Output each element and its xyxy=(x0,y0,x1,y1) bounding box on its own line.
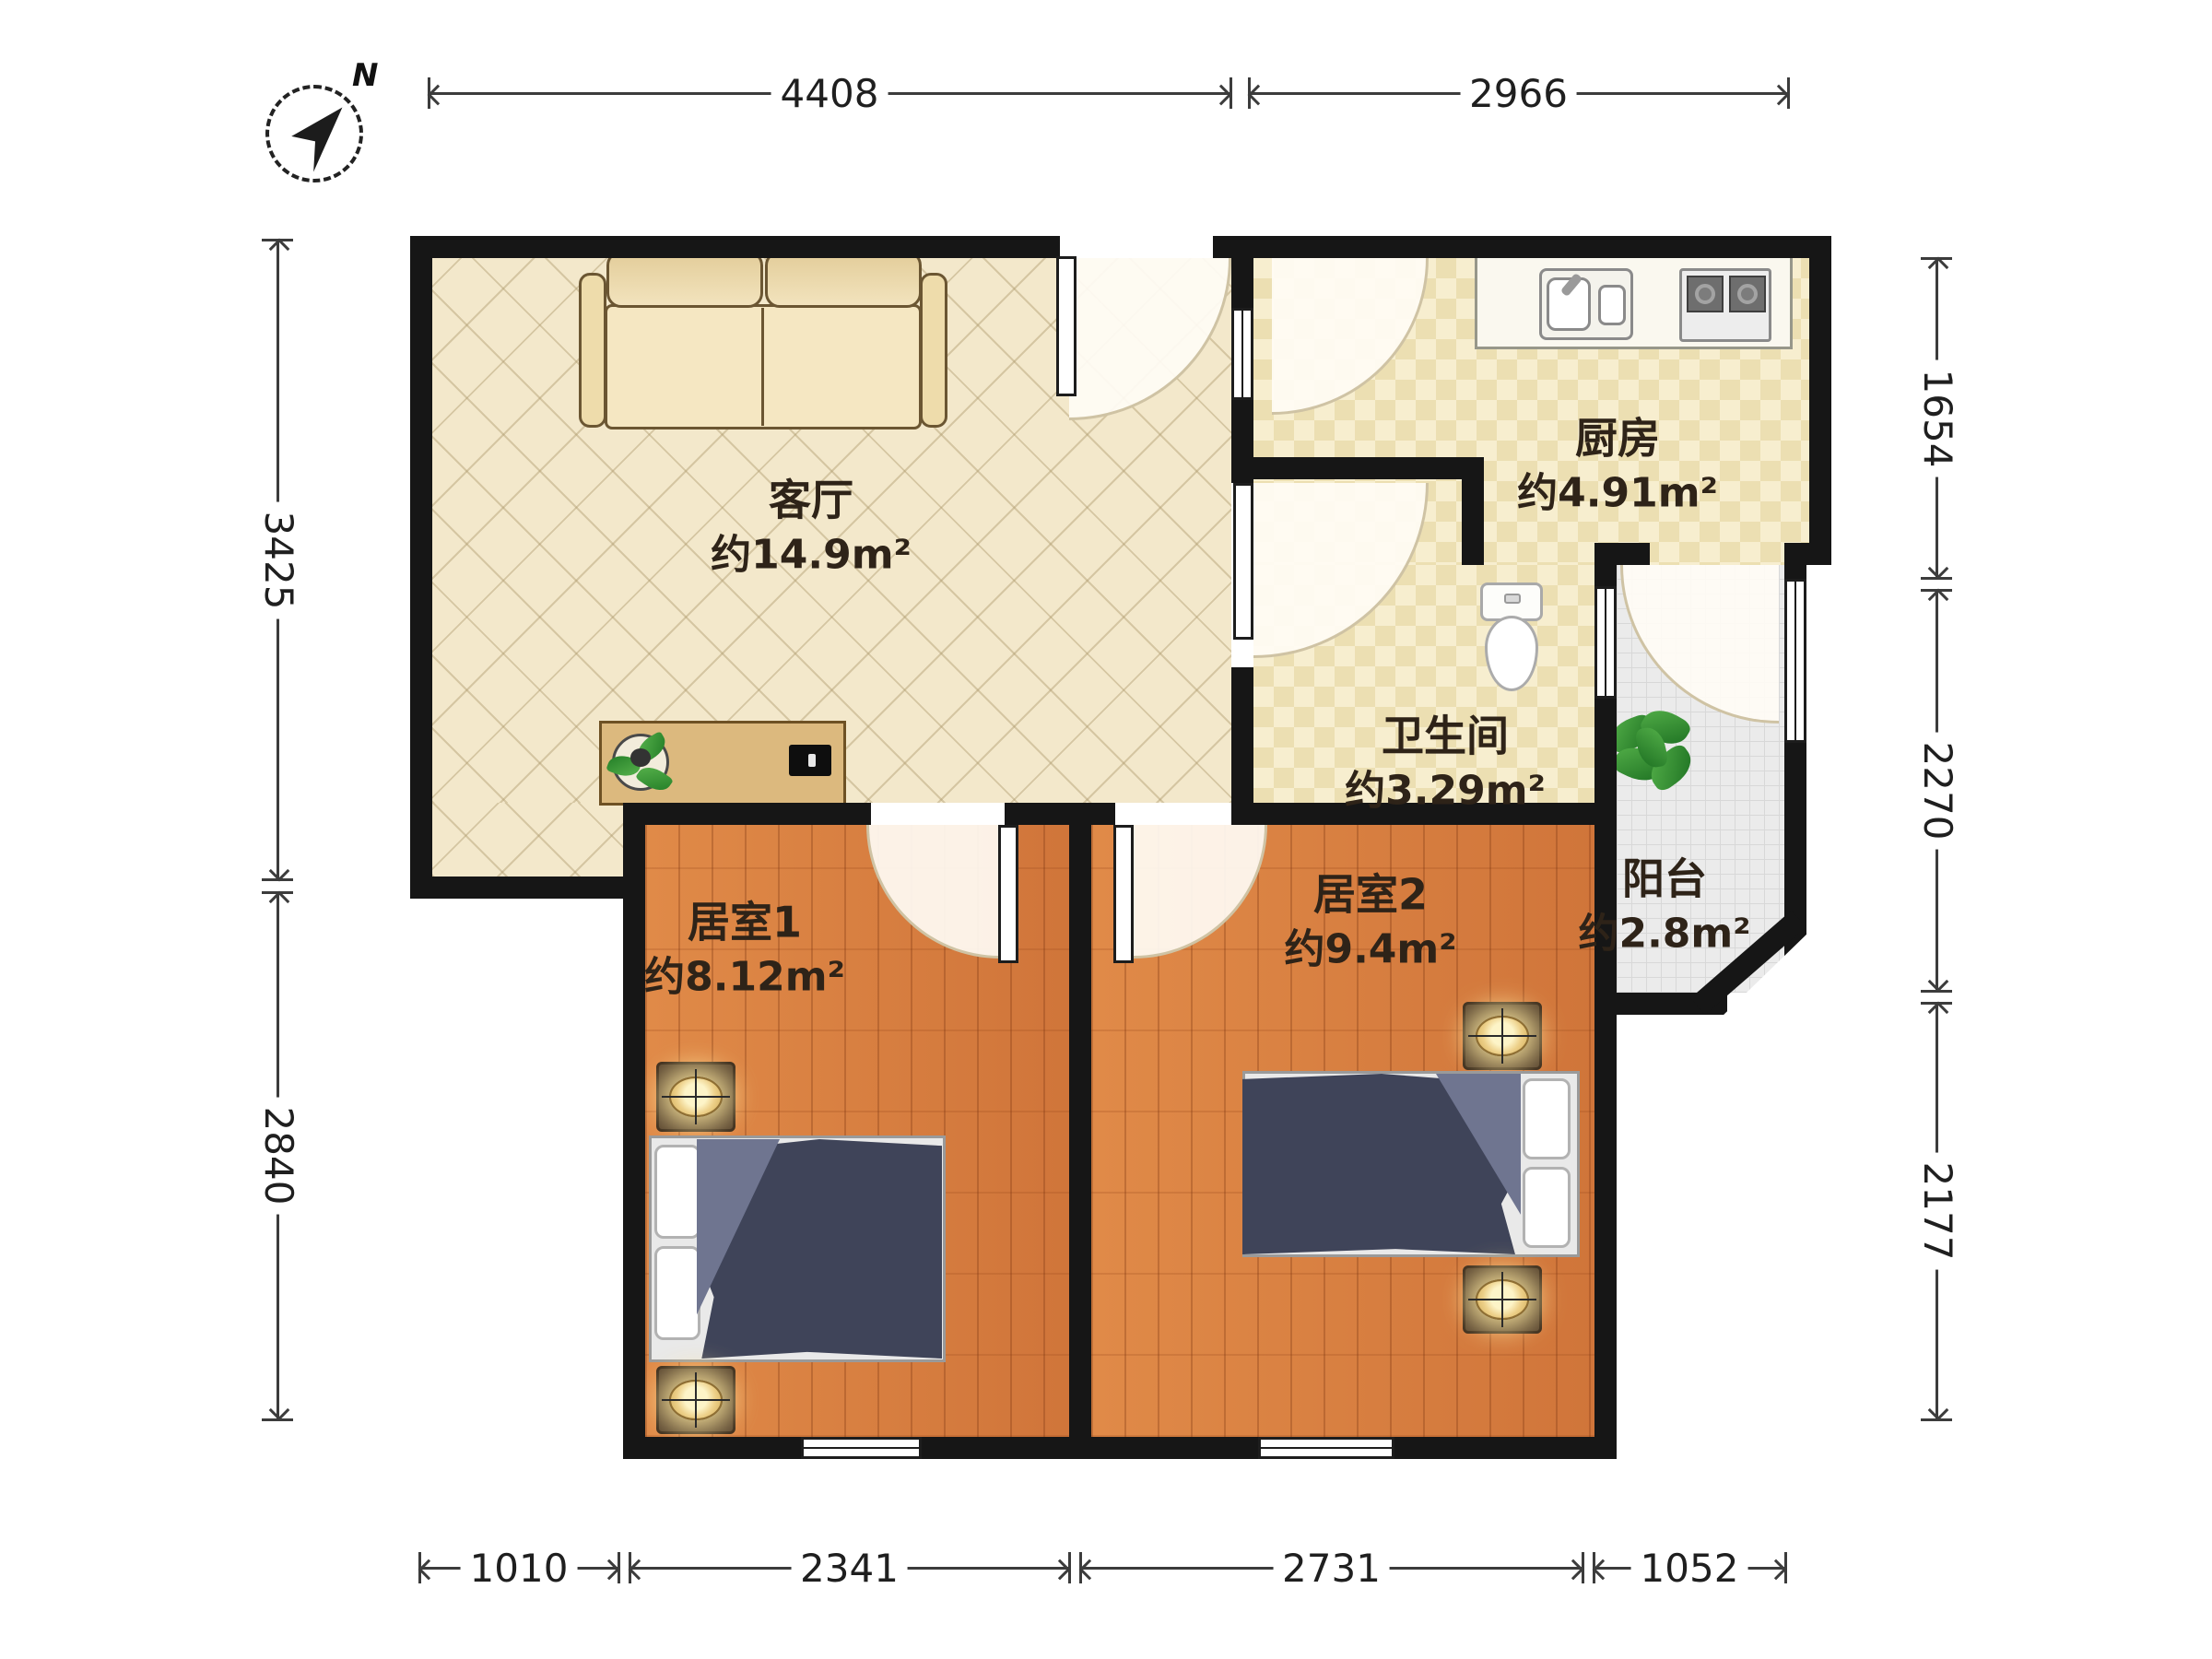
room-name: 居室1 xyxy=(644,896,845,951)
dim-tick xyxy=(1248,77,1251,109)
room-area: 约9.4m² xyxy=(1284,923,1456,975)
lamp-icon xyxy=(669,1380,723,1420)
lamp-icon xyxy=(669,1077,723,1117)
dim-tick xyxy=(1921,1418,1952,1421)
dim-bottom-3: 2731 xyxy=(1080,1567,1583,1570)
sofa-back-cushion xyxy=(765,251,922,308)
pillow xyxy=(1523,1167,1571,1248)
dim-tick xyxy=(418,1552,421,1583)
bedroom1-door-leaf xyxy=(998,825,1018,963)
room-name: 客厅 xyxy=(711,474,912,529)
wall xyxy=(410,236,1060,258)
room-label-kitchen: 厨房 约4.91m² xyxy=(1517,412,1718,520)
sofa-back-cushion xyxy=(606,251,763,308)
sink-drainboard xyxy=(1598,285,1626,325)
wall xyxy=(1809,236,1831,565)
window xyxy=(801,1437,922,1459)
dim-right-3: 2177 xyxy=(1935,1003,1938,1419)
dim-tick xyxy=(1787,77,1790,109)
pillow xyxy=(654,1145,700,1239)
dim-tick xyxy=(1079,1552,1082,1583)
wall xyxy=(1784,543,1831,565)
dim-bottom-4: 1052 xyxy=(1594,1567,1785,1570)
tv-icon xyxy=(789,745,831,776)
wall xyxy=(1231,667,1253,825)
wall xyxy=(1005,803,1115,825)
dim-tick xyxy=(1921,589,1952,592)
dim-label: 2177 xyxy=(1916,1153,1959,1270)
wall xyxy=(1594,565,1617,1459)
wall xyxy=(1213,236,1831,258)
wall xyxy=(1231,457,1484,479)
bathroom-door-leaf xyxy=(1233,483,1253,640)
compass-north-label: N xyxy=(352,57,378,94)
dim-left-1: 3425 xyxy=(276,240,279,880)
dim-label: 2341 xyxy=(791,1547,908,1590)
room-name: 厨房 xyxy=(1517,412,1718,467)
dim-tick xyxy=(262,1418,293,1421)
dim-label: 1654 xyxy=(1916,359,1959,477)
room-label-bedroom2: 居室2 约9.4m² xyxy=(1284,868,1456,976)
dim-tick xyxy=(1921,1002,1952,1005)
dim-tick xyxy=(1921,990,1952,993)
dim-tick xyxy=(1230,77,1232,109)
wall xyxy=(623,803,871,825)
room-label-bathroom: 卫生间 约3.29m² xyxy=(1345,710,1546,818)
nightstand xyxy=(1463,1002,1542,1070)
wall xyxy=(1462,457,1484,565)
dim-label: 2731 xyxy=(1273,1547,1390,1590)
dim-top-1: 4408 xyxy=(429,92,1230,95)
room-area: 约2.8m² xyxy=(1578,907,1750,959)
wall xyxy=(1594,543,1650,565)
sofa-armrest xyxy=(920,273,947,428)
floorplan-canvas: N xyxy=(0,0,2212,1659)
dim-tick xyxy=(1582,1552,1584,1583)
wall xyxy=(410,877,645,899)
wall xyxy=(623,825,645,1459)
dim-tick xyxy=(428,77,430,109)
dim-tick xyxy=(1068,1552,1071,1583)
room-name: 居室2 xyxy=(1284,868,1456,924)
dim-top-2: 2966 xyxy=(1249,92,1788,95)
room-area: 约3.29m² xyxy=(1345,764,1546,817)
window xyxy=(1258,1437,1394,1459)
dim-tick xyxy=(1921,577,1952,580)
room-name: 阳台 xyxy=(1578,853,1750,908)
burner-icon xyxy=(1687,276,1724,312)
dim-tick xyxy=(262,891,293,894)
dim-tick xyxy=(262,878,293,881)
lamp-icon xyxy=(1476,1279,1529,1320)
pillow xyxy=(1523,1078,1571,1159)
dim-tick xyxy=(1593,1552,1595,1583)
sofa-armrest xyxy=(579,273,606,428)
dim-right-1: 1654 xyxy=(1935,258,1938,578)
living-room-floor-strip xyxy=(432,803,645,877)
dim-tick xyxy=(1784,1552,1787,1583)
wall xyxy=(1231,236,1253,308)
window xyxy=(1231,308,1253,400)
dim-right-2: 2270 xyxy=(1935,590,1938,991)
dim-label: 2966 xyxy=(1460,73,1577,115)
dim-tick xyxy=(629,1552,631,1583)
room-label-bedroom1: 居室1 约8.12m² xyxy=(644,896,845,1004)
wall xyxy=(623,1437,1617,1459)
dim-tick xyxy=(1921,257,1952,260)
room-area: 约8.12m² xyxy=(644,950,845,1003)
bedroom2-door-leaf xyxy=(1113,825,1134,963)
room-label-living: 客厅 约14.9m² xyxy=(711,474,912,582)
room-label-balcony: 阳台 约2.8m² xyxy=(1578,853,1750,960)
dim-label: 1010 xyxy=(461,1547,578,1590)
dim-label: 1052 xyxy=(1631,1547,1748,1590)
window xyxy=(1784,579,1806,743)
plant-center xyxy=(630,748,651,767)
nightstand xyxy=(656,1366,735,1434)
window xyxy=(1594,586,1617,699)
dim-label: 4408 xyxy=(771,73,888,115)
toilet-flush-button xyxy=(1504,594,1521,604)
sofa-seat-divider xyxy=(761,308,764,426)
dim-label: 3425 xyxy=(257,501,300,618)
dim-bottom-2: 2341 xyxy=(629,1567,1069,1570)
dim-label: 2840 xyxy=(257,1098,300,1215)
dim-left-2: 2840 xyxy=(276,892,279,1419)
room-area: 约14.9m² xyxy=(711,528,912,581)
dim-label: 2270 xyxy=(1916,732,1959,849)
lamp-icon xyxy=(1476,1016,1529,1056)
entry-door-leaf xyxy=(1056,256,1077,396)
room-name: 卫生间 xyxy=(1345,710,1546,765)
wall xyxy=(1069,825,1091,1437)
pillow xyxy=(654,1246,700,1340)
room-area: 约4.91m² xyxy=(1517,466,1718,519)
compass-arrow-icon xyxy=(273,92,358,177)
dim-bottom-1: 1010 xyxy=(419,1567,618,1570)
nightstand xyxy=(1463,1265,1542,1334)
dim-tick xyxy=(618,1552,620,1583)
nightstand xyxy=(656,1062,735,1132)
wall xyxy=(410,236,432,899)
burner-icon xyxy=(1729,276,1766,312)
dim-tick xyxy=(262,239,293,241)
